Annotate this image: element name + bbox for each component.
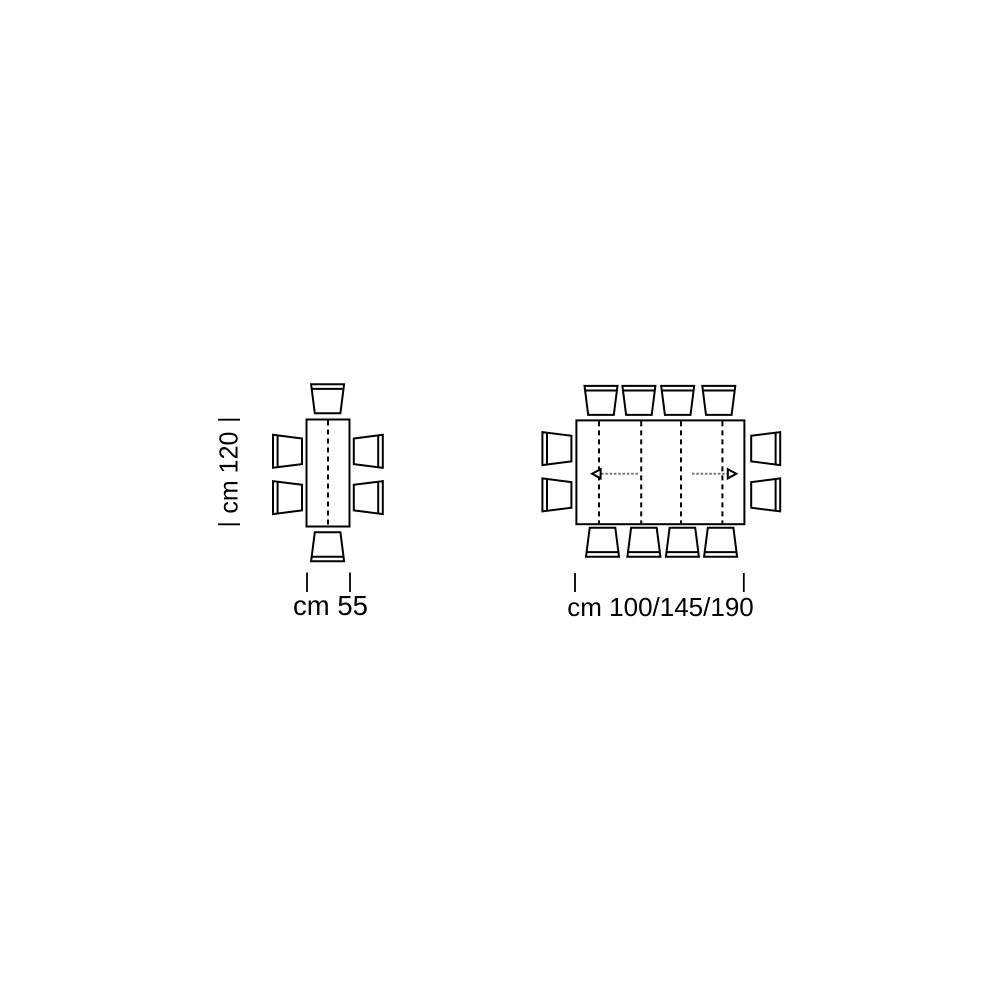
svg-text:cm 55: cm 55 xyxy=(293,590,368,621)
svg-text:cm 120: cm 120 xyxy=(214,432,244,514)
svg-text:cm 100/145/190: cm 100/145/190 xyxy=(567,592,753,622)
